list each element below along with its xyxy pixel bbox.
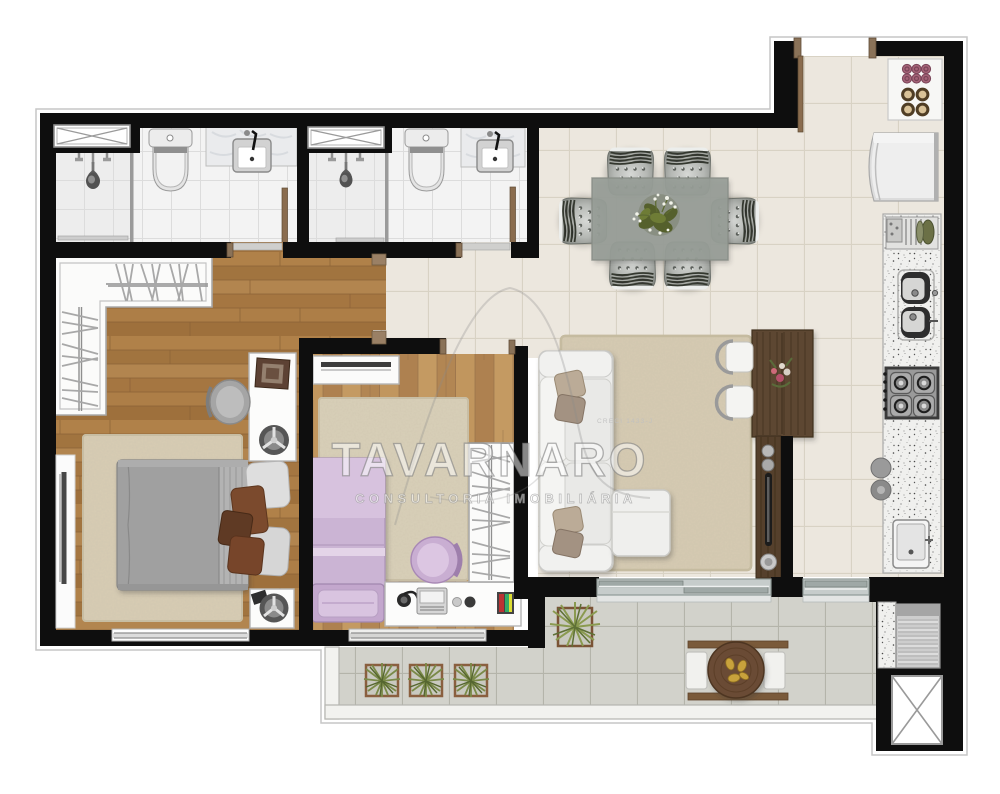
svg-text:CONSULTORIA IMOBILIÁRIA: CONSULTORIA IMOBILIÁRIA (355, 491, 637, 506)
svg-text:TAVARNARO: TAVARNARO (332, 433, 649, 486)
svg-text:CRECI 1433-J: CRECI 1433-J (597, 418, 653, 425)
